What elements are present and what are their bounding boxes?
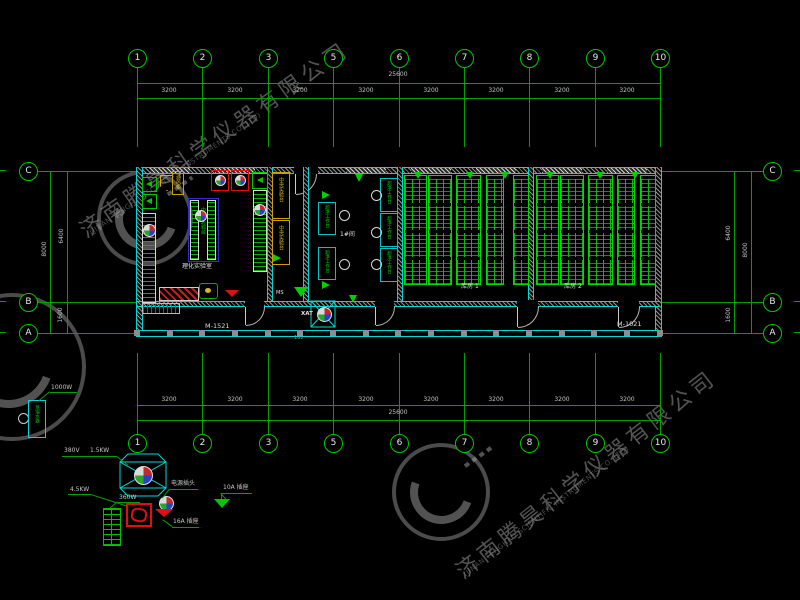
dim-line	[137, 98, 661, 99]
window	[150, 168, 190, 173]
column-marker	[428, 330, 434, 336]
door-tag: M-1521	[205, 323, 230, 330]
radiator	[142, 303, 180, 314]
stool	[371, 227, 382, 238]
leader-line	[172, 527, 199, 528]
storage-rack	[513, 175, 529, 285]
company-logo-watermark	[392, 443, 490, 541]
vent-symbol	[501, 172, 509, 179]
vent-symbol	[414, 172, 422, 179]
clean-bench: 超净工作台	[318, 202, 336, 235]
axis-bubble: 6	[390, 434, 409, 453]
axis-bubble: 3	[259, 49, 278, 68]
column-marker	[591, 330, 597, 336]
storage-rack	[617, 175, 635, 285]
dim-line	[50, 171, 51, 333]
vent-symbol	[294, 287, 308, 297]
leader-line	[50, 392, 77, 393]
edge-tick	[794, 301, 800, 302]
vent-symbol	[273, 254, 281, 262]
column-marker	[232, 330, 238, 336]
dim-total: 8000	[42, 234, 48, 264]
dim-seg: 6400	[726, 218, 732, 248]
axis-bubble: 5	[324, 434, 343, 453]
dim-seg: 3200	[546, 88, 578, 94]
leader-line	[162, 519, 172, 527]
axis-bubble: C	[763, 162, 782, 181]
column-marker	[395, 330, 401, 336]
dim-seg: 1600	[58, 300, 64, 330]
window	[607, 168, 647, 173]
grid-line	[660, 67, 661, 147]
fan-icon	[317, 307, 332, 322]
dim-seg: 6400	[59, 221, 65, 251]
fan-icon	[215, 175, 226, 186]
uv-lamp-symbol	[355, 174, 363, 182]
grid-line	[37, 171, 137, 172]
wall-cabinet	[142, 194, 157, 209]
door-swing-arc	[246, 307, 265, 326]
column-marker	[134, 330, 140, 336]
grid-line	[660, 353, 661, 434]
storage-rack	[456, 175, 481, 285]
vent-symbol	[631, 172, 639, 179]
fan-icon	[254, 204, 266, 216]
window	[476, 168, 516, 173]
socket-10a-symbol	[214, 499, 230, 508]
edge-tick	[0, 332, 6, 333]
exterior-wall-right	[655, 167, 662, 337]
column-marker	[461, 330, 467, 336]
distiller-name: 蒸馏水器	[34, 405, 39, 423]
vent-symbol	[546, 172, 554, 179]
fume-hood-label: 通风柜	[175, 174, 180, 189]
dim-line	[67, 171, 68, 333]
column-marker	[167, 330, 173, 336]
room-label: 1#间	[340, 232, 355, 238]
dim-seg: 3200	[153, 397, 185, 403]
socket-16a-symbol	[155, 509, 173, 517]
plug-label: 电源插头	[171, 481, 195, 487]
power-label: 1.5KW	[90, 448, 109, 454]
fan-icon	[235, 175, 246, 186]
column-marker	[526, 330, 532, 336]
fume-hood-red	[231, 170, 249, 191]
edge-tick	[0, 301, 6, 302]
clean-bench: 超净工作台	[380, 213, 398, 247]
door-swing-arc	[518, 307, 539, 328]
note-text: 162	[294, 336, 304, 341]
uv-lamp-symbol	[322, 191, 330, 199]
grid-line	[399, 353, 400, 434]
room-label: 库房 1	[450, 284, 490, 290]
edge-tick	[794, 332, 800, 333]
grid-line	[660, 171, 763, 172]
eyewash-station	[199, 283, 218, 299]
vent-symbol	[466, 172, 474, 179]
dim-seg: 3200	[480, 88, 512, 94]
axis-bubble: C	[19, 162, 38, 181]
grid-line	[202, 353, 203, 434]
storage-rack	[640, 175, 656, 285]
dim-line	[137, 405, 661, 406]
stool	[371, 190, 382, 201]
axis-bubble: A	[763, 324, 782, 343]
ms-tag: MS	[276, 291, 284, 296]
column-marker	[624, 330, 630, 336]
fume-hood-label-box: 通风柜	[172, 171, 184, 195]
storage-rack	[486, 175, 504, 285]
grid-line	[595, 353, 596, 434]
dim-total: 25600	[378, 72, 418, 78]
grid-line	[137, 67, 138, 147]
axis-bubble: 7	[455, 49, 474, 68]
axis-bubble: 10	[651, 434, 670, 453]
bench-ladder	[207, 200, 216, 260]
dim-seg: 3200	[153, 88, 185, 94]
column-marker	[330, 330, 336, 336]
socket-10a-label: 10A 插座	[223, 485, 249, 491]
leader-line	[170, 489, 198, 490]
stool	[339, 210, 350, 221]
arrow-icon	[257, 177, 263, 183]
grid-line	[333, 67, 334, 147]
axis-bubble: 5	[324, 49, 343, 68]
wall-cabinet	[252, 172, 268, 189]
dim-seg: 3200	[284, 397, 316, 403]
storage-rack	[428, 175, 452, 285]
edge-tick	[794, 170, 800, 171]
dim-seg: 3200	[284, 88, 316, 94]
cad-floor-plan: 济南腾昊科学仪器有限公司 (JINAN TENGHAO SCIENTIFIC I…	[0, 0, 800, 600]
storage-rack	[536, 175, 559, 285]
eyewash-dot	[205, 288, 211, 293]
heater-symbol	[126, 503, 152, 527]
axis-bubble: 8	[520, 49, 539, 68]
vent-symbol	[596, 172, 604, 179]
axis-bubble: 1	[128, 49, 147, 68]
axis-bubble: 7	[455, 434, 474, 453]
stool	[371, 259, 382, 270]
power-label: 4.5KW	[70, 487, 89, 493]
grid-line	[37, 302, 137, 303]
arrow-icon	[146, 181, 152, 187]
edge-tick	[0, 170, 6, 171]
leader-line	[118, 502, 140, 503]
dim-seg: 3200	[219, 88, 251, 94]
voltage-label: 380V	[64, 448, 80, 454]
column-marker	[363, 330, 369, 336]
room-label: 理化实验室	[182, 264, 212, 270]
grid-line	[399, 67, 400, 147]
dim-line	[137, 420, 661, 421]
uv-lamp-symbol	[322, 281, 330, 289]
fan-icon	[134, 466, 153, 485]
bench-label: 超净工作台	[386, 181, 391, 204]
bench-label: 中央实验台	[278, 225, 283, 250]
dim-seg: 3200	[480, 397, 512, 403]
door-swing-arc	[376, 307, 395, 326]
dim-line	[751, 171, 752, 333]
grid-line	[137, 353, 138, 434]
dim-total: 8000	[743, 235, 749, 265]
leader-line	[68, 494, 91, 495]
wall-cabinet	[142, 177, 157, 192]
door-tag: M-1021	[617, 321, 642, 328]
dim-seg: 1600	[726, 300, 732, 330]
axis-bubble: 9	[586, 434, 605, 453]
clean-bench: 超净工作台	[380, 248, 398, 282]
clean-bench: 超净工作台	[380, 178, 398, 212]
dim-seg: 3200	[546, 397, 578, 403]
axis-bubble: 10	[651, 49, 670, 68]
bench-label: 超净工作台	[386, 251, 391, 274]
axis-bubble: B	[763, 293, 782, 312]
grid-line	[595, 67, 596, 147]
dim-line	[137, 83, 661, 84]
grille-symbol	[103, 508, 121, 546]
grid-line	[529, 67, 530, 147]
stool	[339, 259, 350, 270]
bench-label: 超净工作台	[324, 250, 329, 273]
axis-bubble: 2	[193, 49, 212, 68]
bench-label: 超净工作台	[324, 205, 329, 228]
arrow-icon	[146, 198, 152, 204]
dim-seg: 3200	[415, 397, 447, 403]
dim-seg: 3200	[350, 397, 382, 403]
dim-seg: 3200	[611, 397, 643, 403]
grid-line	[37, 333, 137, 334]
equipment-tag: XAT	[301, 312, 313, 318]
grid-line	[333, 353, 334, 434]
uv-lamp-symbol	[349, 295, 357, 303]
watermark-text-en: (JINAN TENGHAO SCIENTIFIC INSTRUMENTS CO…	[462, 444, 630, 578]
bench-ladder	[190, 200, 199, 260]
axis-bubble: 2	[193, 434, 212, 453]
dim-total: 25600	[378, 410, 418, 416]
axis-bubble: A	[19, 324, 38, 343]
power-label: 360W	[119, 495, 136, 501]
grid-line	[268, 353, 269, 434]
dim-seg: 3200	[415, 88, 447, 94]
axis-bubble: 8	[520, 434, 539, 453]
window	[346, 168, 386, 173]
grid-line	[660, 333, 763, 334]
leader-line	[221, 493, 252, 494]
dim-line	[734, 171, 735, 333]
grid-line	[202, 67, 203, 147]
column-marker	[199, 330, 205, 336]
fan-icon	[143, 224, 156, 237]
room-label: 库房 2	[553, 284, 593, 290]
column-marker	[265, 330, 271, 336]
wall-bench	[253, 190, 267, 272]
central-bench: 中央实验台	[272, 172, 290, 219]
column-marker	[493, 330, 499, 336]
column-marker	[559, 330, 565, 336]
storage-rack	[560, 175, 584, 285]
grid-line	[268, 67, 269, 147]
axis-bubble: B	[19, 293, 38, 312]
corridor-wall	[137, 301, 660, 307]
leader-line	[62, 456, 117, 457]
storage-rack	[588, 175, 613, 285]
grid-line	[464, 353, 465, 434]
storage-rack	[404, 175, 427, 285]
dim-seg: 3200	[350, 88, 382, 94]
socket-16a-label: 16A 插座	[173, 519, 199, 525]
axis-bubble: 6	[390, 49, 409, 68]
sink-bench	[159, 287, 199, 301]
dim-seg: 3200	[219, 397, 251, 403]
bench-label: 超净工作台	[386, 216, 391, 239]
clean-bench: 超净工作台	[318, 247, 336, 280]
bench-label: 中央实验台	[278, 177, 283, 202]
axis-bubble: 1	[128, 434, 147, 453]
column-marker	[657, 330, 663, 336]
power-label: 1000W	[51, 385, 72, 391]
grid-line	[660, 302, 763, 303]
axis-bubble: 9	[586, 49, 605, 68]
partition-wall	[303, 167, 309, 302]
distiller-symbol: 蒸馏水器	[28, 400, 46, 438]
dim-seg: 3200	[611, 88, 643, 94]
axis-bubble: 3	[259, 434, 278, 453]
socket-16a-symbol	[225, 290, 239, 297]
fan-icon	[195, 210, 207, 222]
fume-hood-red	[211, 170, 229, 191]
grid-line	[464, 67, 465, 147]
heater-coil	[130, 507, 148, 524]
grid-line	[529, 353, 530, 434]
